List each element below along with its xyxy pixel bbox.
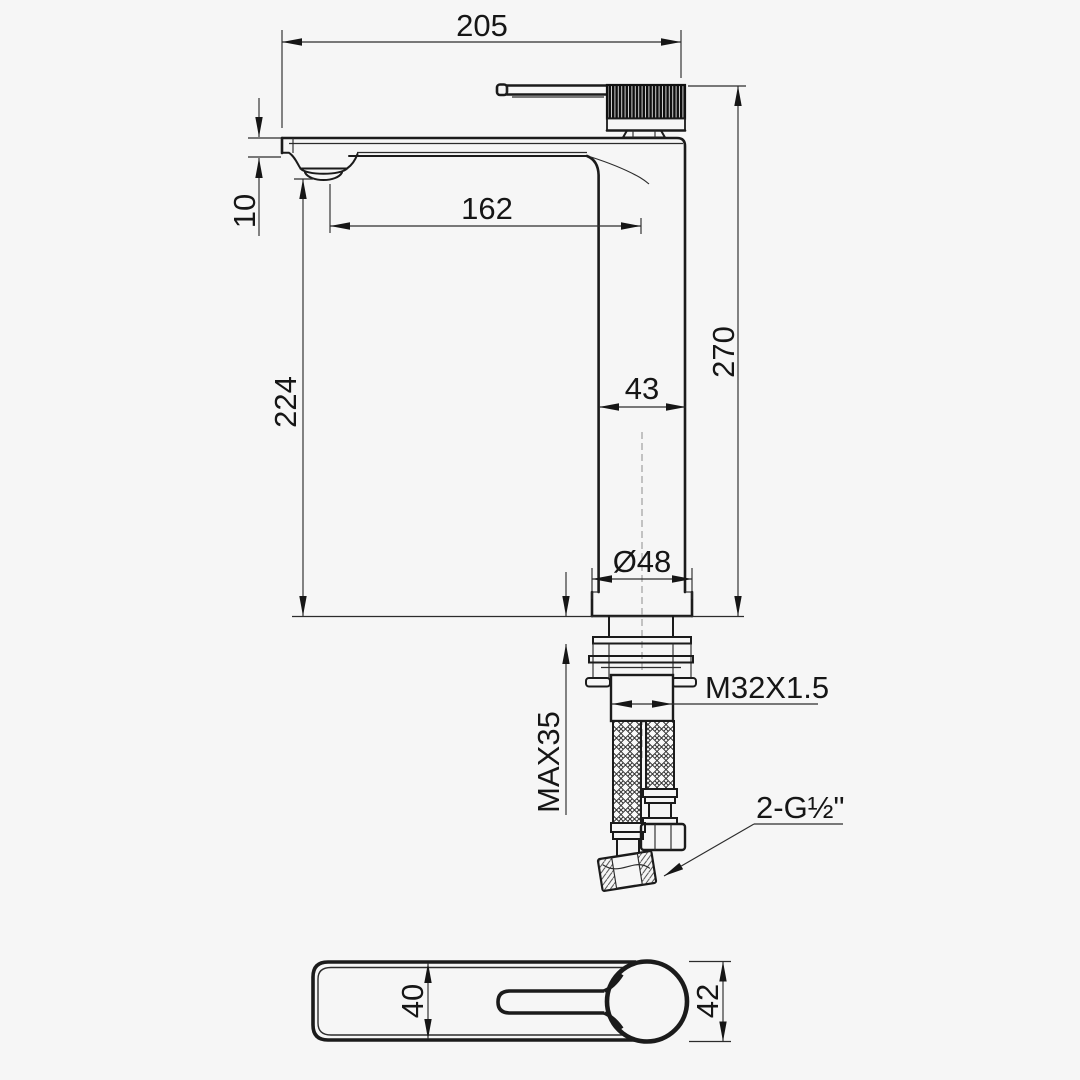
faucet-technical-drawing: 205 162 10 224 270 <box>0 0 1080 1080</box>
dim-overall-height-label: 270 <box>706 326 741 378</box>
dim-spout-height-label: 224 <box>268 376 303 428</box>
dim-plan-handle-width-label: 40 <box>395 984 430 1018</box>
hose-left-hex-nut <box>598 851 656 891</box>
threaded-block <box>611 675 673 721</box>
plan-knob-circle <box>607 962 687 1042</box>
hose-right-ferrule <box>643 789 677 797</box>
washer-upper <box>593 637 691 644</box>
hose-right-tube <box>649 803 671 818</box>
dim-max-deck-thickness: MAX35 <box>531 572 566 815</box>
dim-mounting-thread-label: M32X1.5 <box>705 670 829 705</box>
plan-body-inner-line <box>318 968 632 1036</box>
dim-spout-reach: 162 <box>330 184 641 234</box>
knob-band <box>607 119 685 131</box>
plan-body-outline <box>313 962 636 1040</box>
hose-right-braid <box>646 721 674 789</box>
dim-body-width: 43 <box>599 371 686 407</box>
mounting-hardware <box>586 617 696 722</box>
side-view: 205 162 10 224 270 <box>227 8 845 891</box>
dim-plan-knob-diameter-label: 42 <box>690 984 725 1018</box>
dim-spout-thickness: 10 <box>227 98 281 236</box>
washer-lower <box>589 656 693 663</box>
handle <box>497 85 685 138</box>
hose-left-braid <box>613 721 641 823</box>
dim-spout-thickness-label: 10 <box>227 194 262 228</box>
supply-hoses <box>598 721 685 891</box>
technical-drawing-page: 205 162 10 224 270 <box>0 0 1080 1080</box>
dim-hose-connection: 2-G½" <box>664 790 845 876</box>
dim-spout-reach-label: 162 <box>461 191 513 226</box>
dim-body-width-label: 43 <box>625 371 659 406</box>
bracket-foot-left <box>586 678 610 687</box>
lever-end-cap <box>497 85 507 96</box>
dim-overall-width-label: 205 <box>456 8 508 43</box>
hose-right-hex-nut <box>641 824 685 850</box>
dim-max-deck-label: MAX35 <box>531 711 566 813</box>
hose-right-ring <box>645 797 675 803</box>
body-front-edge <box>587 156 599 592</box>
dim-hose-connection-label: 2-G½" <box>756 790 845 825</box>
dim-base-diameter-label: Ø48 <box>613 544 672 579</box>
plan-lever-slot <box>498 991 604 1013</box>
bracket-foot-right <box>672 678 696 687</box>
dim-overall-height: 270 <box>688 86 746 616</box>
dim-spout-height: 224 <box>268 179 313 616</box>
plan-view: 40 42 <box>313 962 731 1042</box>
spout-tip-underside <box>282 153 301 169</box>
dim-plan-handle-width: 40 <box>395 963 430 1039</box>
dim-plan-knob-diameter: 42 <box>689 962 731 1042</box>
knurled-knob <box>607 85 685 119</box>
hose-left-ring <box>613 832 643 839</box>
